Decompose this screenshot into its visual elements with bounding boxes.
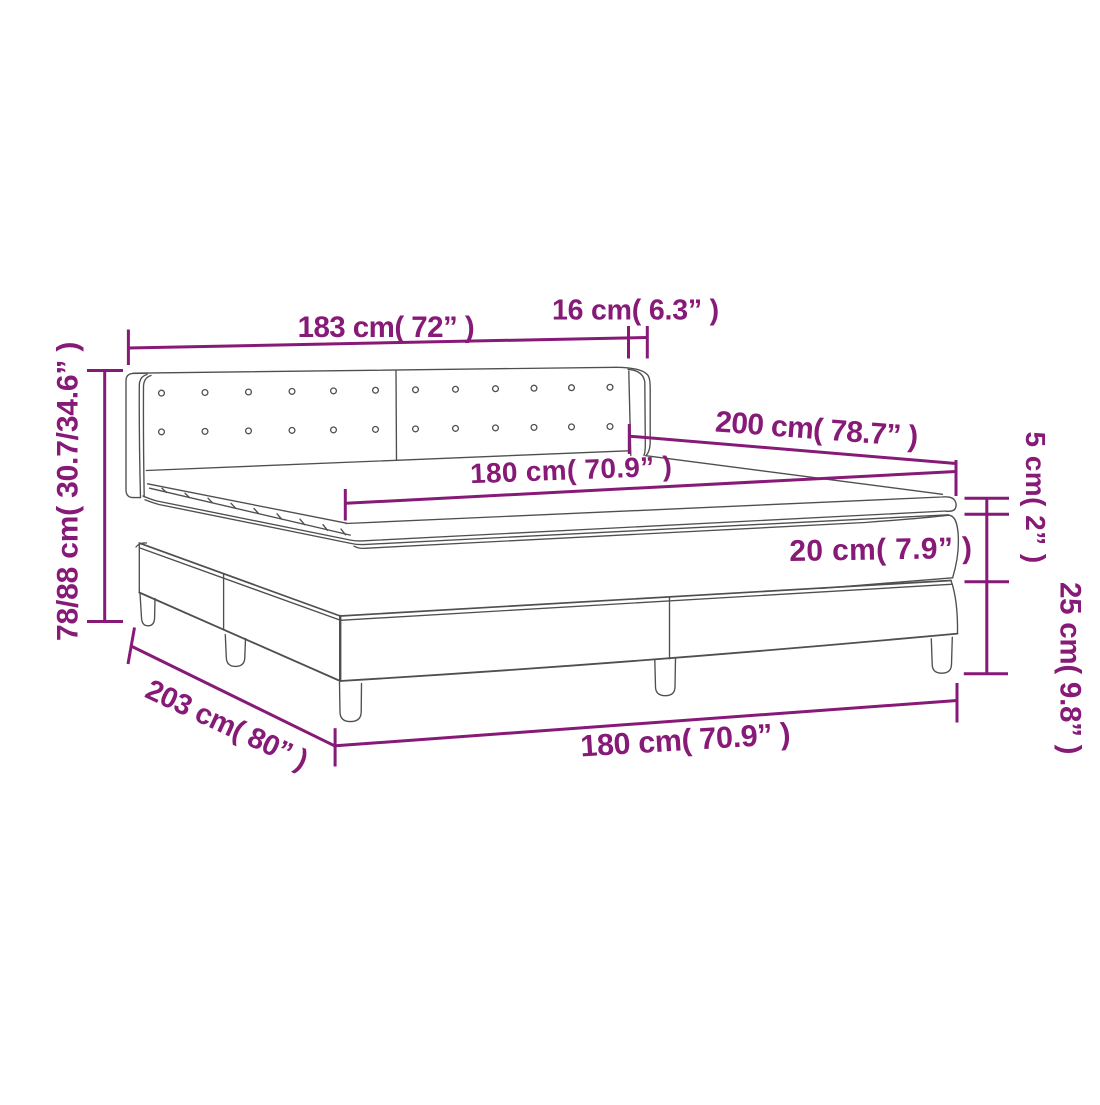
svg-text:5 cm( 2” ): 5 cm( 2” ) (1020, 432, 1051, 564)
svg-text:78/88 cm( 30.7/34.6” ): 78/88 cm( 30.7/34.6” ) (52, 342, 85, 641)
svg-text:183 cm( 72” ): 183 cm( 72” ) (298, 311, 475, 344)
svg-text:20 cm( 7.9” ): 20 cm( 7.9” ) (789, 532, 973, 568)
svg-text:16 cm( 6.3” ): 16 cm( 6.3” ) (552, 295, 719, 327)
svg-text:25 cm( 9.8” ): 25 cm( 9.8” ) (1054, 582, 1087, 754)
